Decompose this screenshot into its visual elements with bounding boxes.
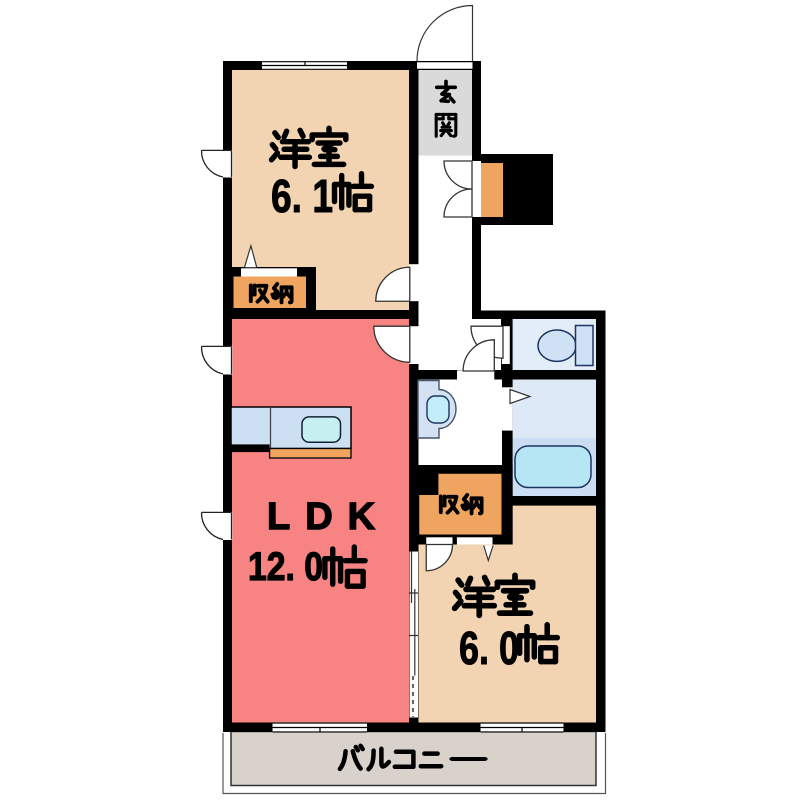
svg-text:6. 0: 6. 0 xyxy=(459,622,519,674)
svg-text:LDK: LDK xyxy=(267,496,390,538)
svg-text:12. 0: 12. 0 xyxy=(248,545,323,589)
svg-text:6. 1: 6. 1 xyxy=(271,170,333,222)
